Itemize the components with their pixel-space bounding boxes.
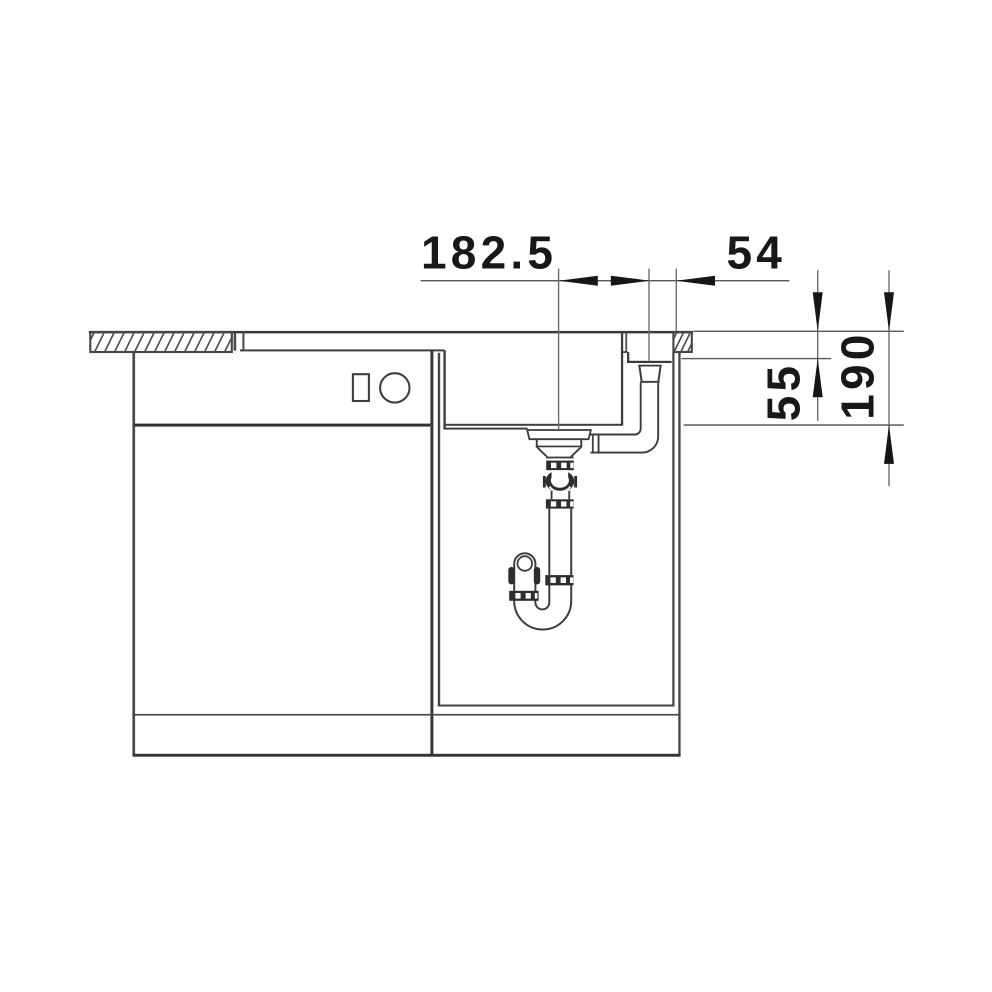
svg-text:54: 54	[727, 226, 787, 278]
svg-text:55: 55	[758, 362, 810, 422]
svg-text:190: 190	[832, 330, 884, 419]
svg-text:182.5: 182.5	[421, 226, 557, 278]
